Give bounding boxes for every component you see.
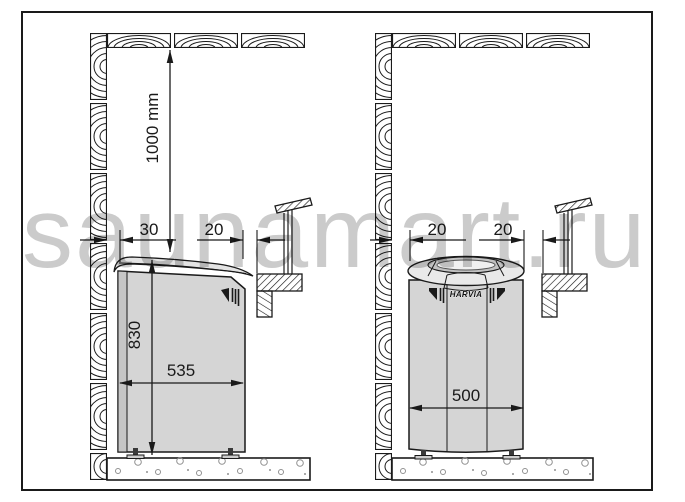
left-heater (114, 257, 253, 459)
drawing-frame (22, 12, 652, 490)
dimension-label-1000mm: 1000 mm (143, 93, 162, 164)
right-rail-ledge (542, 274, 587, 291)
left-rail-ledge (257, 274, 302, 291)
dimension-label-535: 535 (167, 361, 195, 380)
right-heater: HARVIA (408, 257, 524, 460)
right-heater-body (409, 280, 523, 452)
dimension-label-20-wall: 20 (428, 220, 447, 239)
dimension-label-20-left: 20 (205, 220, 224, 239)
right-rail-post (542, 291, 557, 317)
left-heater-back-panel (118, 271, 127, 452)
harvia-logo: HARVIA (450, 290, 482, 299)
left-rail-post (257, 291, 272, 317)
left-concrete-floor (107, 458, 310, 480)
dimension-label-20-front: 20 (494, 220, 513, 239)
dimension-label-830: 830 (125, 321, 144, 349)
right-ceiling-timber (393, 34, 590, 49)
right-heater-stone-opening (437, 260, 495, 270)
dimension-label-500: 500 (452, 386, 480, 405)
right-concrete-floor (392, 458, 593, 480)
installation-diagram-page: HARVIA 1000 mm 30 (0, 0, 685, 502)
dimension-label-30: 30 (140, 220, 159, 239)
installation-diagram: HARVIA 1000 mm 30 (0, 0, 685, 502)
left-ceiling-timber (108, 34, 305, 49)
